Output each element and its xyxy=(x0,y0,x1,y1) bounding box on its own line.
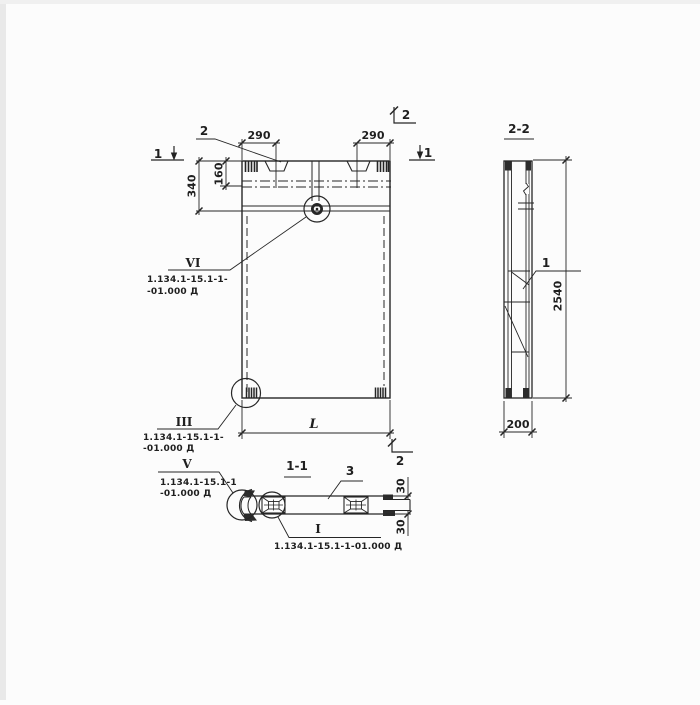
pocket-left xyxy=(262,497,285,513)
detail-vi-label: VI xyxy=(185,256,201,270)
detail-circle-v xyxy=(227,490,257,520)
dim-30-top: 30 xyxy=(395,478,408,494)
top-right-hatch xyxy=(378,162,389,173)
drawing-sheet: 290 290 340 160 2 1 1 xyxy=(0,0,700,700)
detail-vi-ref-2: -01.000 Д xyxy=(147,287,198,297)
side-callout-1-label: 1 xyxy=(542,256,550,270)
plan-section: 1-1 xyxy=(158,457,412,552)
arrow-down-icon xyxy=(417,152,423,160)
mark-1-right-label: 1 xyxy=(424,146,432,160)
section-mark-1-left: 1 xyxy=(151,146,184,161)
left-notch xyxy=(265,161,288,171)
dim-340-160-group: 340 160 xyxy=(186,157,243,215)
front-view: 290 290 340 160 2 1 1 xyxy=(143,107,435,469)
detail-i-callout: I 1.134.1-15.1-1-01.000 Д xyxy=(274,517,402,552)
side-inner-lines xyxy=(508,161,529,398)
detail-vi-ref-1: 1.134.1-15.1-1- xyxy=(147,275,228,285)
dim-200: 200 xyxy=(507,418,530,431)
mark-1-left-label: 1 xyxy=(154,147,162,161)
mark-2-bottom-label: 2 xyxy=(396,454,404,468)
side-view-title: 2-2 xyxy=(508,122,530,136)
dim-2540-group: 2540 xyxy=(533,156,572,402)
detail-iii-label: III xyxy=(176,415,193,429)
detail-iii-ref-2: -01.000 Д xyxy=(143,444,194,454)
detail-vi-callout: VI 1.134.1-15.1-1- -01.000 Д xyxy=(147,217,306,297)
dim-290-group: 290 290 xyxy=(238,129,394,188)
detail-v-ref-2: -01.000 Д xyxy=(160,489,211,499)
detail-v-label: V xyxy=(181,457,192,471)
dim-2540: 2540 xyxy=(552,280,565,311)
plan-title: 1-1 xyxy=(286,459,308,473)
callout-3-group: 3 xyxy=(328,464,363,499)
arrow-down-icon xyxy=(171,153,177,161)
scan-edge-left xyxy=(0,0,6,700)
side-bottom-insert-left xyxy=(506,388,512,398)
side-view: 2-2 1 2540 200 xyxy=(499,122,581,438)
section-mark-2-bottom: 2 xyxy=(388,439,413,469)
mark-2-top-label: 2 xyxy=(402,108,410,122)
dim-160: 160 xyxy=(213,162,226,185)
dim-30-bottom: 30 xyxy=(395,519,408,535)
detail-i-label: I xyxy=(315,522,321,536)
dim-30-group: 30 30 xyxy=(386,477,412,536)
cap-spool xyxy=(241,497,251,514)
pocket-middle xyxy=(344,497,368,513)
callout-2-label: 2 xyxy=(200,124,208,138)
dim-290-left: 290 xyxy=(248,129,271,142)
bottom-left-hatch xyxy=(247,388,257,398)
detail-iii-callout: III 1.134.1-15.1-1- -01.000 Д xyxy=(143,405,236,454)
dim-length: L xyxy=(308,417,318,432)
side-bottom-insert-right xyxy=(523,388,529,398)
top-left-hatch xyxy=(246,162,258,173)
section-mark-2-top: 2 xyxy=(390,107,416,124)
scan-edge-top xyxy=(0,0,700,4)
detail-i-ref: 1.134.1-15.1-1-01.000 Д xyxy=(274,542,402,552)
dim-length-group: L xyxy=(238,400,394,439)
side-top-insert-left xyxy=(505,162,511,171)
dim-200-group: 200 xyxy=(499,401,537,438)
detail-iii-ref-1: 1.134.1-15.1-1- xyxy=(143,433,224,443)
callout-3-label: 3 xyxy=(346,464,354,478)
dim-290-right: 290 xyxy=(362,129,385,142)
detail-v-callout: V 1.134.1-15.1-1 -01.000 Д xyxy=(158,457,237,499)
bottom-right-hatch xyxy=(376,388,386,398)
lifting-loop-center xyxy=(316,208,319,211)
side-top-insert-right xyxy=(526,162,532,171)
section-mark-1-right: 1 xyxy=(409,145,435,160)
right-notch xyxy=(347,161,370,171)
dim-340: 340 xyxy=(186,174,199,197)
detail-v-ref-1: 1.134.1-15.1-1 xyxy=(160,478,237,488)
